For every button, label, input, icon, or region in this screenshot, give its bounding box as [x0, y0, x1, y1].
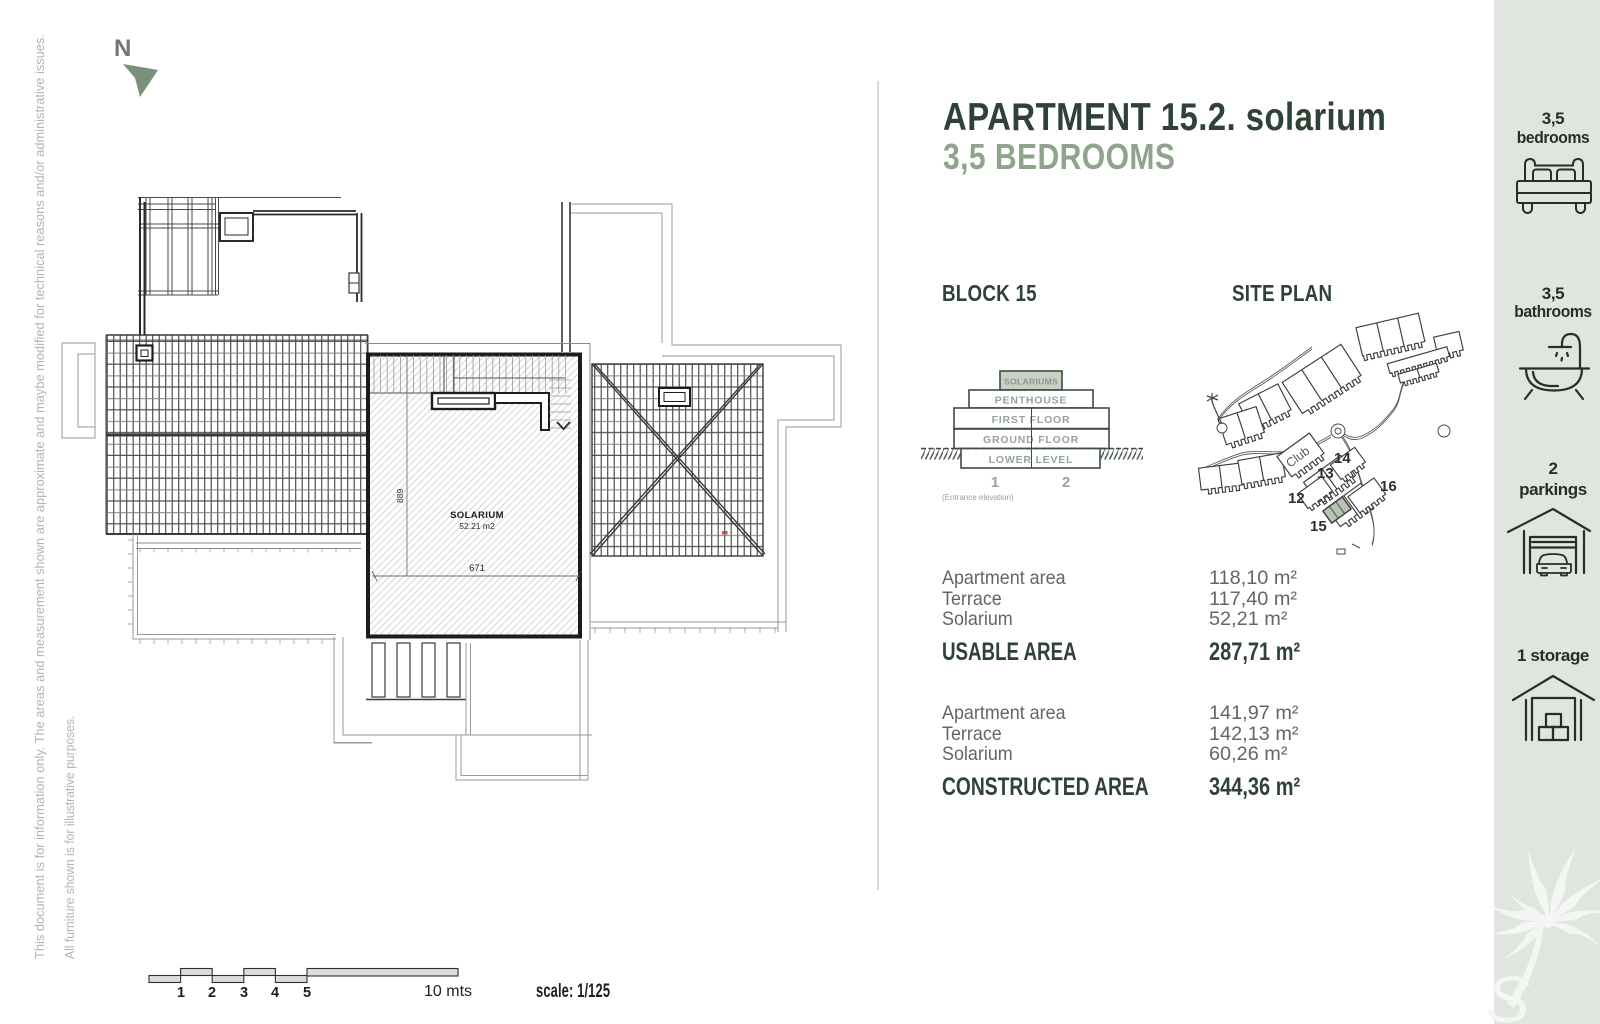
svg-text:scale: 1/125: scale: 1/125 — [536, 981, 610, 1002]
svg-text:Solarium: Solarium — [942, 607, 1013, 629]
svg-text:117,40 m²: 117,40 m² — [1209, 588, 1297, 610]
svg-text:287,71 m²: 287,71 m² — [1209, 638, 1301, 666]
svg-text:bedrooms: bedrooms — [1517, 128, 1590, 147]
svg-text:This document is for informati: This document is for information only. T… — [32, 34, 47, 959]
svg-text:14: 14 — [1334, 450, 1351, 467]
svg-text:52,21 m²: 52,21 m² — [1209, 608, 1288, 630]
svg-text:3,5 BEDROOMS: 3,5 BEDROOMS — [943, 137, 1175, 177]
svg-text:3,5: 3,5 — [1542, 284, 1564, 303]
svg-text:APARTMENT 15.2. solarium: APARTMENT 15.2. solarium — [943, 94, 1386, 138]
svg-text:2: 2 — [1548, 459, 1557, 478]
svg-text:(Entrance elevation): (Entrance elevation) — [942, 493, 1014, 502]
svg-text:N: N — [114, 35, 131, 62]
svg-text:3,5: 3,5 — [1542, 109, 1564, 128]
svg-text:CONSTRUCTED AREA: CONSTRUCTED AREA — [942, 773, 1149, 801]
svg-text:Terrace: Terrace — [942, 722, 1002, 744]
svg-text:Terrace: Terrace — [942, 587, 1002, 609]
svg-text:2: 2 — [208, 985, 216, 1001]
svg-text:52.21 m2: 52.21 m2 — [459, 521, 495, 531]
svg-text:SOLARIUMS: SOLARIUMS — [1004, 377, 1058, 387]
svg-text:5: 5 — [303, 985, 311, 1001]
svg-text:parkings: parkings — [1519, 480, 1587, 499]
svg-text:142,13 m²: 142,13 m² — [1209, 723, 1299, 745]
svg-text:4: 4 — [271, 985, 279, 1001]
svg-text:13: 13 — [1317, 465, 1334, 482]
svg-text:SITE PLAN: SITE PLAN — [1232, 280, 1332, 307]
svg-text:10 mts: 10 mts — [424, 983, 472, 1000]
svg-text:12: 12 — [1288, 490, 1305, 507]
svg-text:USABLE AREA: USABLE AREA — [942, 637, 1077, 665]
svg-text:1: 1 — [991, 474, 999, 491]
svg-text:2: 2 — [1062, 474, 1070, 491]
svg-text:3: 3 — [240, 985, 248, 1001]
svg-text:344,36 m²: 344,36 m² — [1209, 773, 1301, 801]
svg-text:bathrooms: bathrooms — [1514, 302, 1592, 321]
svg-text:S: S — [1486, 962, 1530, 1024]
svg-text:671: 671 — [469, 563, 485, 574]
svg-text:889: 889 — [395, 489, 405, 503]
svg-text:PENTHOUSE: PENTHOUSE — [995, 395, 1068, 407]
svg-text:BLOCK 15: BLOCK 15 — [942, 280, 1037, 307]
svg-text:141,97 m²: 141,97 m² — [1209, 702, 1299, 724]
svg-text:60,26 m²: 60,26 m² — [1209, 743, 1288, 765]
svg-text:15: 15 — [1310, 518, 1327, 535]
svg-text:Solarium: Solarium — [942, 742, 1013, 764]
svg-text:SOLARIUM: SOLARIUM — [450, 510, 504, 521]
svg-text:All furniture shown is for ill: All furniture shown is for illustrative … — [63, 716, 78, 959]
svg-text:118,10 m²: 118,10 m² — [1209, 567, 1297, 589]
svg-text:Apartment area: Apartment area — [942, 701, 1066, 723]
svg-text:1: 1 — [177, 985, 185, 1001]
svg-text:1 storage: 1 storage — [1517, 646, 1589, 665]
svg-text:16: 16 — [1380, 478, 1397, 495]
svg-text:Apartment area: Apartment area — [942, 566, 1066, 588]
